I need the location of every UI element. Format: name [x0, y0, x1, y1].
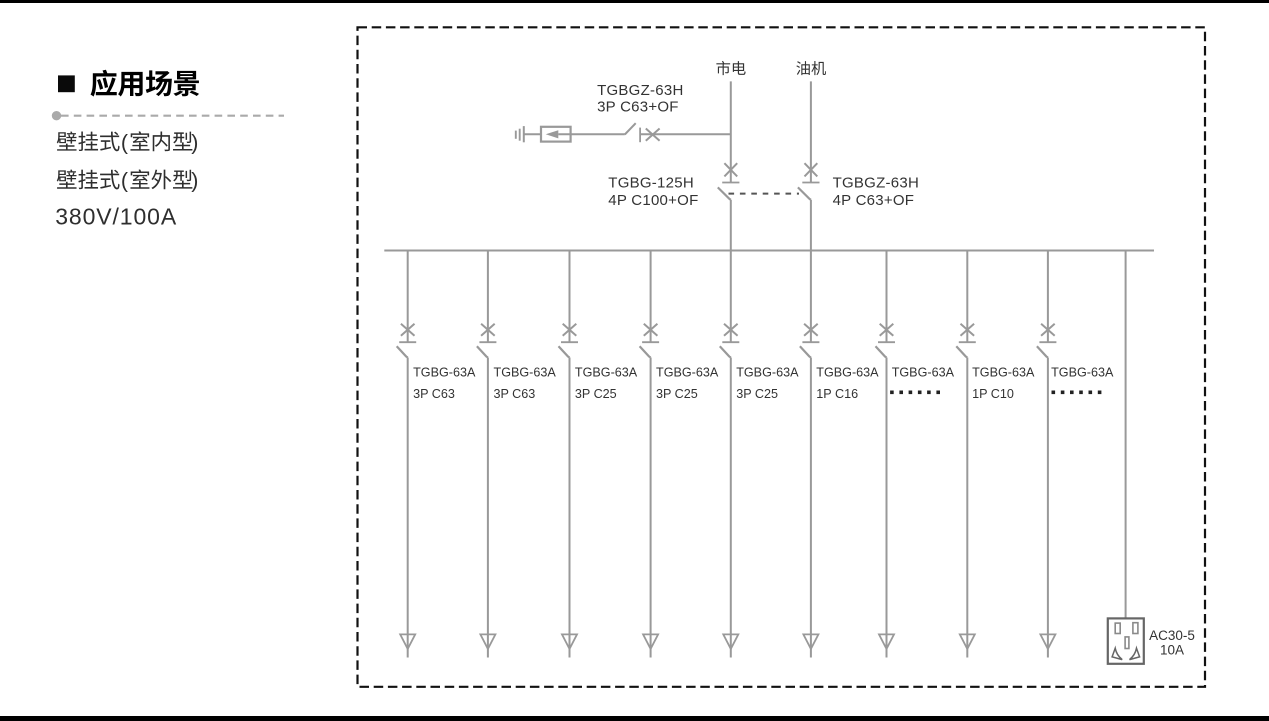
svg-text:TGBG-63A: TGBG-63A — [575, 365, 638, 379]
svg-text:): ) — [191, 131, 198, 155]
svg-text:TGBG-125H: TGBG-125H — [608, 175, 694, 192]
svg-text:TGBGZ-63H: TGBGZ-63H — [597, 82, 683, 99]
svg-text:(: ( — [121, 131, 128, 155]
svg-text:TGBG-63A: TGBG-63A — [494, 365, 557, 379]
svg-text:TGBGZ-63H: TGBGZ-63H — [833, 175, 919, 192]
svg-text:4P C100+OF: 4P C100+OF — [608, 192, 698, 209]
svg-text:TGBG-63A: TGBG-63A — [816, 365, 879, 379]
svg-text:AC30-5: AC30-5 — [1149, 628, 1195, 643]
svg-text:1P C10: 1P C10 — [972, 387, 1014, 401]
svg-text:3P C63: 3P C63 — [413, 387, 455, 401]
svg-text:1P C16: 1P C16 — [816, 387, 858, 401]
svg-text:TGBG-63A: TGBG-63A — [892, 365, 955, 379]
svg-text:3P C63: 3P C63 — [494, 387, 536, 401]
svg-text:3P C25: 3P C25 — [656, 387, 698, 401]
svg-text:3P C25: 3P C25 — [736, 387, 778, 401]
svg-text:(: ( — [121, 169, 128, 193]
svg-text:): ) — [191, 169, 198, 193]
svg-text:3P C63+OF: 3P C63+OF — [597, 98, 679, 115]
svg-text:TGBG-63A: TGBG-63A — [972, 365, 1035, 379]
svg-text:4P C63+OF: 4P C63+OF — [833, 192, 915, 209]
svg-text:380V/100A: 380V/100A — [55, 204, 177, 230]
svg-text:TGBG-63A: TGBG-63A — [1051, 365, 1114, 379]
svg-text:TGBG-63A: TGBG-63A — [736, 365, 799, 379]
svg-text:3P C25: 3P C25 — [575, 387, 617, 401]
svg-text:10A: 10A — [1160, 643, 1184, 658]
svg-text:TGBG-63A: TGBG-63A — [413, 365, 476, 379]
svg-text:TGBG-63A: TGBG-63A — [656, 365, 719, 379]
